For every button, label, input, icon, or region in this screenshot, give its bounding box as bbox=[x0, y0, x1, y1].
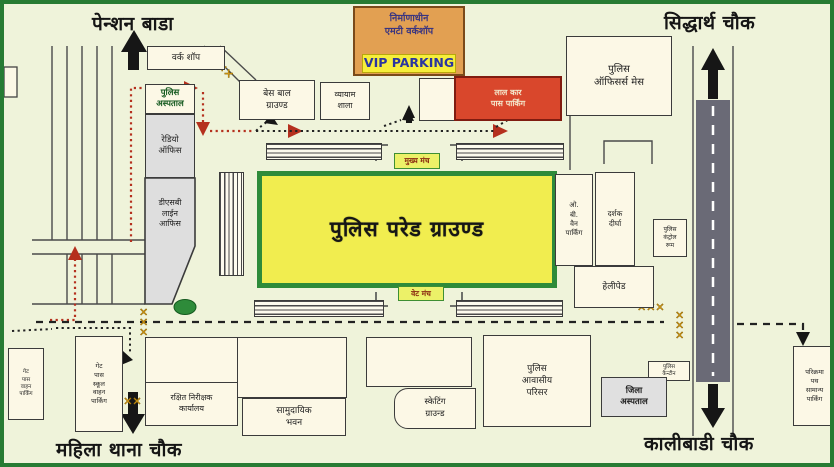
vip-parking-label: VIP PARKING bbox=[362, 54, 456, 73]
building-gate-booth bbox=[419, 78, 455, 121]
building-police-residential: पुलिस आवासीय परिसर bbox=[483, 335, 591, 427]
svg-text:✕: ✕ bbox=[675, 329, 684, 342]
arrow-down-parikrama bbox=[796, 332, 810, 346]
parade-ground-map: ✕✕✕ ✕✕✕ ✕✕✕ ✕✕✕ ✕✕ पेन्शन बाडा सिद्धार्थ… bbox=[0, 0, 834, 467]
route-bottom-road-dashes bbox=[36, 322, 803, 337]
label-mahila-thana-chowk: महिला थाना चौक bbox=[56, 436, 182, 462]
building-reserve-inspector-office: रक्षित निरीक्षक कार्यालय bbox=[145, 382, 238, 426]
stand-bottom-right bbox=[456, 300, 563, 317]
stand-bottom-left bbox=[254, 300, 384, 317]
stand-top-left bbox=[266, 143, 382, 160]
main-stage: मुख्य मंच bbox=[394, 153, 440, 169]
building-spectator-gallery: दर्शक दीर्घा bbox=[595, 172, 635, 266]
label-siddharth-chowk: सिद्धार्थ चौक bbox=[664, 9, 755, 35]
building-district-hospital: जिला अस्पताल bbox=[601, 377, 667, 417]
building-community-block bbox=[237, 337, 347, 398]
building-police-officers-mess: पुलिस ऑफिसर्स मेस bbox=[566, 36, 672, 116]
building-police-hospital: पुलिस अस्पताल bbox=[145, 84, 195, 114]
building-workshop: वर्क शॉप bbox=[147, 46, 225, 70]
building-radio-office: रेडियो ऑफिस bbox=[145, 114, 195, 178]
label-pension-bada: पेन्शन बाडा bbox=[92, 10, 174, 36]
stand-top-right bbox=[456, 143, 564, 160]
edge-box bbox=[4, 67, 17, 97]
arrow-up-pension-bada bbox=[121, 30, 147, 70]
green-oval-tree bbox=[174, 300, 196, 315]
building-helipad: हेलीपेड bbox=[574, 266, 654, 308]
building-baseball-ground: बेस बाल ग्राउण्ड bbox=[239, 80, 315, 120]
building-car-pass-parking: लाल कार पास पार्किंग bbox=[454, 76, 562, 121]
building-vyayam-shala: व्यायाम शाला bbox=[320, 82, 370, 120]
building-police-control-room: पुलिस कंट्रोल रूम bbox=[653, 219, 687, 257]
building-parikrama-parking: परिक्रमा पथ सामान्य पार्किंग bbox=[793, 346, 834, 426]
building-ob-van-parking: ओ. बी. वैन पार्किंग bbox=[555, 174, 593, 266]
vet-stage: वेट मंच bbox=[398, 286, 444, 301]
building-skating-ground: स्केटिंग ग्राउन्ड bbox=[394, 388, 476, 429]
arrow-down-kalibadi bbox=[701, 384, 725, 428]
building-community-hall: सामुदायिक भवन bbox=[242, 398, 346, 436]
building-left-edge-parking: गेट पास वाहन पार्किंग bbox=[8, 348, 44, 420]
stand-left bbox=[219, 172, 244, 276]
building-reserve-inspector-block bbox=[145, 337, 238, 383]
parade-ground: पुलिस परेड ग्राउण्ड bbox=[257, 171, 557, 288]
building-gate-pass-parking: गेट पास स्कूल वाहन पार्किंग bbox=[75, 336, 123, 432]
label-kalibadi-chowk: कालीबाडी चौक bbox=[644, 430, 754, 456]
arrow-up-siddharth-chowk bbox=[701, 48, 725, 99]
building-mt-workshop-vip-parking: निर्माणाधीन एमटी वर्कशॉप VIP PARKING bbox=[353, 6, 465, 76]
building-skating-block bbox=[366, 337, 472, 387]
building-dsb-line-office-label: डीएसबी लाईन आफिस bbox=[145, 184, 195, 244]
main-road-vertical bbox=[693, 46, 733, 436]
